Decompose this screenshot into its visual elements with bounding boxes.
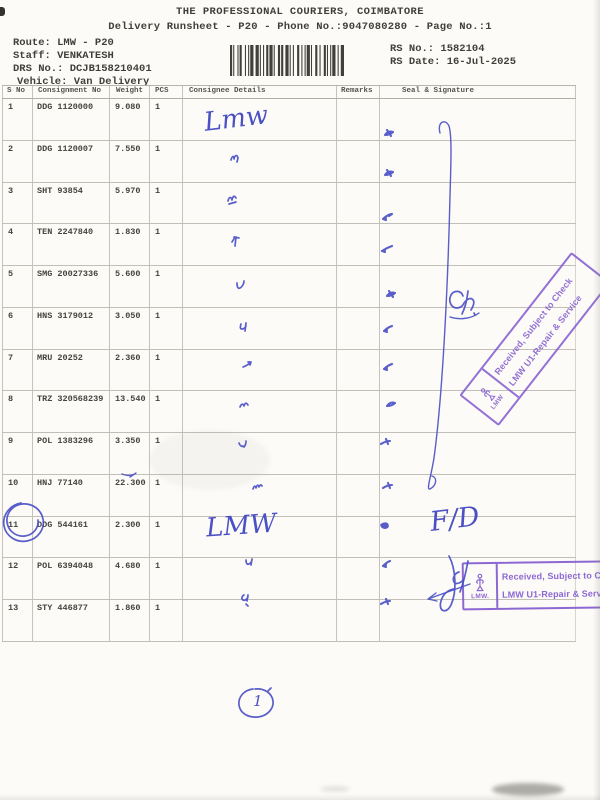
drs-no-line: DRS No.: DCJB158210401 bbox=[13, 63, 152, 75]
scan-edge-shadow-right bbox=[593, 0, 600, 800]
cell-consignment-no: HNJ 77140 bbox=[33, 475, 110, 516]
cell-pcs: 1 bbox=[150, 224, 183, 265]
cell-weight: 3.050 bbox=[110, 308, 150, 349]
cell-consignee-details bbox=[183, 350, 337, 391]
cell-weight: 9.080 bbox=[110, 99, 150, 140]
table-row: 3SHT 938545.9701 bbox=[2, 183, 576, 225]
cell-weight: 5.970 bbox=[110, 183, 150, 224]
cell-s-no: 6 bbox=[2, 308, 33, 349]
stamp-received-bottom: LMW. Received, Subject to Check LMW U1-R… bbox=[462, 560, 600, 611]
cell-consignee-details bbox=[183, 391, 337, 432]
table-row: 5SMG 200273365.6001 bbox=[2, 266, 576, 308]
cell-consignment-no: MRU 20252 bbox=[33, 350, 110, 391]
cell-consignee-details bbox=[183, 183, 337, 224]
cell-s-no: 10 bbox=[2, 475, 33, 516]
cell-weight: 5.600 bbox=[110, 266, 150, 307]
cell-pcs: 1 bbox=[150, 350, 183, 391]
route-line: Route: LMW - P20 bbox=[13, 37, 114, 49]
cell-remarks bbox=[337, 517, 380, 558]
cell-consignment-no: POL 1383296 bbox=[33, 433, 110, 474]
table-row: 11DDG 5441612.3001 bbox=[2, 517, 576, 559]
cell-seal-signature bbox=[380, 141, 576, 182]
barcode bbox=[230, 45, 344, 76]
cell-s-no: 2 bbox=[2, 141, 33, 182]
table-row: 10HNJ 7714022.3001 bbox=[2, 475, 576, 517]
cell-remarks bbox=[337, 558, 380, 599]
rs-no-line: RS No.: 1582104 bbox=[390, 43, 485, 55]
cell-consignment-no: POL 6394048 bbox=[33, 558, 110, 599]
stamp-emblem-cell: LMW. bbox=[464, 564, 499, 608]
cell-weight: 22.300 bbox=[110, 475, 150, 516]
cell-consignment-no: DDG 1120007 bbox=[33, 141, 110, 182]
cell-consignment-no: DDG 544161 bbox=[33, 517, 110, 558]
cell-pcs: 1 bbox=[150, 391, 183, 432]
cell-consignment-no: STY 446877 bbox=[33, 600, 110, 641]
cell-pcs: 1 bbox=[150, 266, 183, 307]
cell-consignment-no: SHT 93854 bbox=[33, 183, 110, 224]
cell-remarks bbox=[337, 266, 380, 307]
table-row: 9POL 13832963.3501 bbox=[2, 433, 576, 475]
cell-pcs: 1 bbox=[150, 308, 183, 349]
cell-consignee-details bbox=[183, 224, 337, 265]
cell-s-no: 4 bbox=[2, 224, 33, 265]
cell-consignment-no: TEN 2247840 bbox=[33, 224, 110, 265]
table-row: 4TEN 22478401.8301 bbox=[2, 224, 576, 266]
cell-remarks bbox=[337, 600, 380, 641]
cell-seal-signature bbox=[380, 183, 576, 224]
cell-remarks bbox=[337, 391, 380, 432]
cell-weight: 1.860 bbox=[110, 600, 150, 641]
cell-remarks bbox=[337, 183, 380, 224]
cell-consignment-no: HNS 3179012 bbox=[33, 308, 110, 349]
cell-s-no: 8 bbox=[2, 391, 33, 432]
cell-weight: 7.550 bbox=[110, 141, 150, 182]
table-row: 1DDG 11200009.0801 bbox=[2, 99, 576, 141]
scan-smudge bbox=[150, 430, 270, 490]
cell-consignment-no: TRZ 320568239 bbox=[33, 391, 110, 432]
table-row: 2DDG 11200077.5501 bbox=[2, 141, 576, 183]
cell-weight: 4.680 bbox=[110, 558, 150, 599]
cell-s-no: 3 bbox=[2, 183, 33, 224]
goddess-emblem-icon bbox=[474, 573, 486, 593]
cell-seal-signature bbox=[380, 433, 576, 474]
cell-s-no: 12 bbox=[2, 558, 33, 599]
stamp-line1: Received, Subject to Check bbox=[502, 570, 600, 582]
cell-remarks bbox=[337, 308, 380, 349]
cell-consignee-details bbox=[183, 141, 337, 182]
rs-date-line: RS Date: 16-Jul-2025 bbox=[390, 56, 516, 68]
cell-weight: 2.360 bbox=[110, 350, 150, 391]
scan-edge-mark bbox=[0, 7, 5, 16]
cell-consignment-no: DDG 1120000 bbox=[33, 99, 110, 140]
header-weight: Weight bbox=[110, 86, 150, 98]
doc-title: THE PROFESSIONAL COURIERS, COIMBATORE bbox=[0, 6, 600, 18]
cell-s-no: 9 bbox=[2, 433, 33, 474]
cell-pcs: 1 bbox=[150, 99, 183, 140]
cell-pcs: 1 bbox=[150, 183, 183, 224]
stamp-text: Received, Subject to Check LMW U1-Repair… bbox=[498, 562, 600, 608]
cell-s-no: 13 bbox=[2, 600, 33, 641]
staff-line: Staff: VENKATESH bbox=[13, 50, 114, 62]
cell-weight: 2.300 bbox=[110, 517, 150, 558]
cell-s-no: 7 bbox=[2, 350, 33, 391]
cell-pcs: 1 bbox=[150, 600, 183, 641]
header-s-no: S No bbox=[2, 86, 33, 98]
header-pcs: PCS bbox=[150, 86, 183, 98]
cell-remarks bbox=[337, 475, 380, 516]
header-consignee-details: Consignee Details bbox=[183, 86, 337, 98]
cell-seal-signature bbox=[380, 99, 576, 140]
cell-pcs: 1 bbox=[150, 141, 183, 182]
cell-remarks bbox=[337, 350, 380, 391]
stamp-org-label: LMW. bbox=[471, 592, 489, 599]
header-remarks: Remarks bbox=[337, 86, 380, 98]
table-row: 6HNS 31790123.0501 bbox=[2, 308, 576, 350]
cell-weight: 13.540 bbox=[110, 391, 150, 432]
cell-consignee-details bbox=[183, 266, 337, 307]
cell-remarks bbox=[337, 224, 380, 265]
handwritten-fd-note: F/D bbox=[428, 501, 481, 538]
scan-smudge bbox=[320, 786, 350, 792]
cell-s-no: 5 bbox=[2, 266, 33, 307]
cell-consignee-details bbox=[183, 308, 337, 349]
cell-remarks bbox=[337, 99, 380, 140]
table-header-row: S No Consignment No Weight PCS Consignee… bbox=[2, 86, 576, 99]
scan-edge-shadow-bottom bbox=[0, 794, 600, 800]
cell-s-no: 1 bbox=[2, 99, 33, 140]
cell-pcs: 1 bbox=[150, 517, 183, 558]
cell-consignee-details bbox=[183, 600, 337, 641]
cell-consignee-details bbox=[183, 558, 337, 599]
cell-weight: 3.350 bbox=[110, 433, 150, 474]
scanned-delivery-runsheet: THE PROFESSIONAL COURIERS, COIMBATORE De… bbox=[0, 0, 600, 800]
doc-subtitle: Delivery Runsheet - P20 - Phone No.:9047… bbox=[0, 21, 600, 33]
stamp-line2: LMW U1-Repair & Service bbox=[502, 588, 600, 600]
cell-consignment-no: SMG 20027336 bbox=[33, 266, 110, 307]
cell-s-no: 11 bbox=[2, 517, 33, 558]
header-seal-signature: Seal & Signature bbox=[380, 86, 576, 98]
header-consignment-no: Consignment No bbox=[33, 86, 110, 98]
handwritten-note-row11: LMW bbox=[205, 509, 278, 544]
cell-weight: 1.830 bbox=[110, 224, 150, 265]
cell-remarks bbox=[337, 433, 380, 474]
cell-seal-signature bbox=[380, 224, 576, 265]
cell-pcs: 1 bbox=[150, 558, 183, 599]
handwritten-circled-number: 1 bbox=[253, 692, 263, 710]
cell-remarks bbox=[337, 141, 380, 182]
